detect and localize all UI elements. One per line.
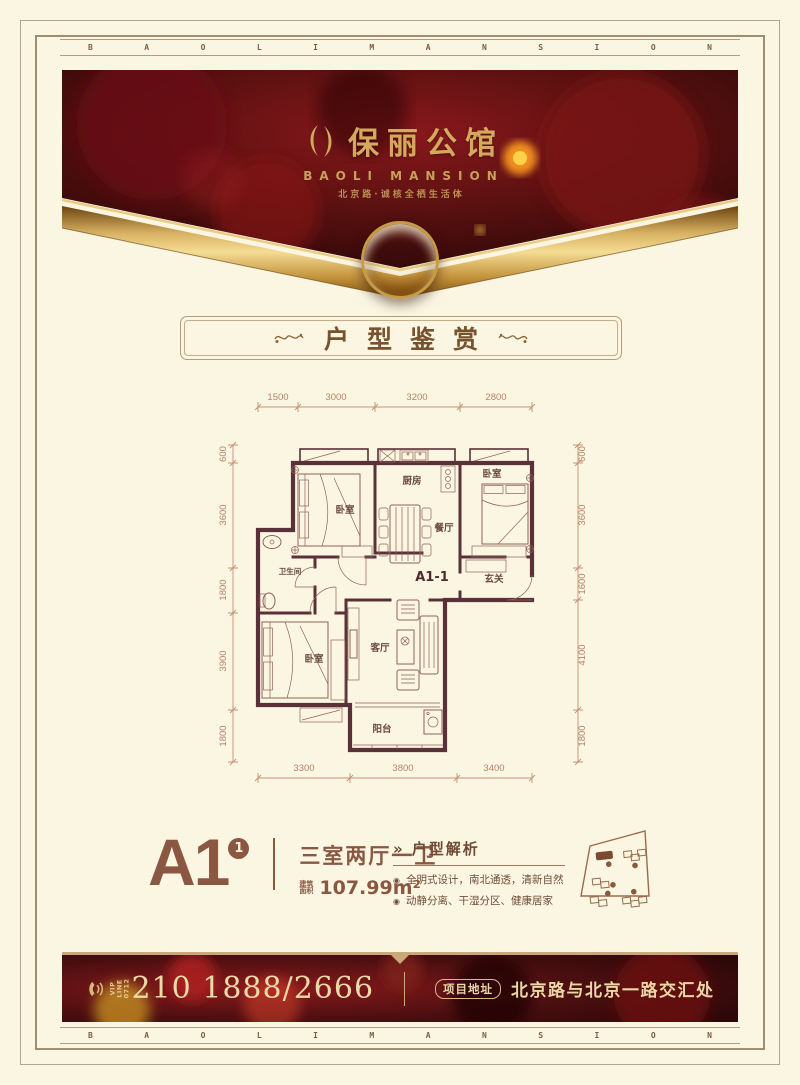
dimension-lines	[228, 402, 583, 783]
svg-text:1500: 1500	[267, 392, 288, 403]
brand-letter: N	[707, 43, 712, 52]
footer-banner-notch	[391, 955, 409, 964]
svg-text:600: 600	[577, 446, 588, 462]
address-label-pill: 项目地址	[435, 979, 501, 999]
svg-text:1800: 1800	[218, 725, 229, 746]
svg-text:3600: 3600	[577, 504, 588, 525]
svg-text:1800: 1800	[577, 725, 588, 746]
brand-letter: O	[201, 43, 206, 52]
room-label-dining: 餐厅	[433, 522, 454, 534]
svg-text:4100: 4100	[577, 644, 588, 665]
brand-letter: N	[707, 1031, 712, 1040]
brand-letter: B	[88, 43, 93, 52]
svg-text:1600: 1600	[577, 573, 588, 594]
bullet-icon: ◉	[393, 895, 400, 908]
vip-line-label: VIP LINE 0712	[110, 972, 131, 1006]
logo-chinese-name: 保丽公馆	[348, 118, 504, 163]
phone-number: 210 1888/2666	[131, 971, 374, 1006]
brand-letter-strip-bottom: B A O L I M A N S I O N	[60, 1027, 740, 1044]
door-swings	[295, 557, 532, 613]
svg-text:3200: 3200	[406, 392, 427, 403]
unit-name: A1	[148, 830, 228, 894]
svg-text:3400: 3400	[483, 763, 504, 774]
section-title-inner-border	[184, 320, 618, 356]
brand-letter: A	[426, 1031, 431, 1040]
analysis-section: » 户型解析 ◉ 全明式设计，南北通透，清新自然 ◉ 动静分离、干湿分区、健康居…	[393, 838, 583, 908]
brand-letter: O	[651, 1031, 656, 1040]
svg-text:3000: 3000	[325, 392, 346, 403]
area-label: 建筑 面积	[299, 881, 313, 896]
brand-letter: S	[538, 43, 543, 52]
svg-text:3300: 3300	[293, 763, 314, 774]
room-label-kitchen: 厨房	[402, 475, 421, 487]
analysis-title: 户型解析	[412, 838, 480, 859]
unit-divider	[273, 838, 275, 890]
brand-letter: N	[482, 43, 487, 52]
svg-text:3900: 3900	[218, 650, 229, 671]
footer-content: VIP LINE 0712 210 1888/2666 项目地址 北京路与北京一…	[62, 955, 738, 1022]
room-label-living: 客厅	[369, 642, 390, 654]
section-title-box: 户型鉴赏	[180, 316, 622, 360]
brand-letter: A	[144, 43, 149, 52]
logo-english-name: BAOLI MANSION	[303, 169, 504, 183]
chevron-right-icon: »	[393, 840, 403, 858]
brand-letter: I	[313, 1031, 318, 1040]
brand-letter: O	[651, 43, 656, 52]
brand-letter: L	[257, 1031, 262, 1040]
analysis-bullet-text: 全明式设计，南北通透，清新自然	[406, 874, 564, 887]
brand-letter: S	[538, 1031, 543, 1040]
phone-group: VIP LINE 0712 210 1888/2666	[85, 971, 374, 1006]
logo-tagline: 北京路·诚核全栖生活体	[338, 187, 464, 200]
unit-superscript-badge: 1	[228, 838, 249, 859]
gold-sphere-ornament	[361, 221, 439, 299]
footer-divider	[404, 972, 405, 1006]
brand-letter: A	[426, 43, 431, 52]
brand-letter: I	[595, 1031, 600, 1040]
brand-letter: M	[369, 43, 374, 52]
walls	[258, 449, 532, 750]
room-label-balcony: 阳台	[372, 723, 392, 735]
flourish-right-icon	[498, 330, 528, 346]
svg-text:2800: 2800	[485, 392, 506, 403]
brand-letter: B	[88, 1031, 93, 1040]
svg-text:1800: 1800	[218, 579, 229, 600]
bullet-icon: ◉	[393, 874, 400, 887]
svg-text:3800: 3800	[392, 763, 413, 774]
room-label-bath: 卫生间	[279, 566, 302, 576]
brand-letter-strip-top: B A O L I M A N S I O N	[60, 39, 740, 56]
brand-letter: A	[144, 1031, 149, 1040]
brand-letter: N	[482, 1031, 487, 1040]
logo-block: 保丽公馆 BAOLI MANSION 北京路·诚核全栖生活体	[62, 118, 738, 200]
brand-letter: M	[369, 1031, 374, 1040]
phone-icon	[85, 978, 107, 1000]
floorplan-drawing: 1500 3000 3200 2800 3300 3800 3400 600 3…	[190, 383, 610, 803]
brand-letter: L	[257, 43, 262, 52]
area-label-line2: 面积	[299, 888, 313, 896]
brand-letter: I	[313, 43, 318, 52]
flyer-page: B A O L I M A N S I O N	[0, 0, 800, 1085]
hero-banner: 保丽公馆 BAOLI MANSION 北京路·诚核全栖生活体	[62, 70, 738, 302]
analysis-bullet-2: ◉ 动静分离、干湿分区、健康居家	[393, 895, 583, 908]
brand-letter: I	[595, 43, 600, 52]
room-label-bedroom1: 卧室	[335, 504, 355, 516]
site-plan-sketch	[575, 818, 670, 918]
brand-letter: O	[201, 1031, 206, 1040]
svg-text:600: 600	[218, 446, 229, 462]
room-label-bedroom2: 卧室	[304, 653, 324, 665]
baoli-logo-icon	[304, 122, 338, 160]
address-text: 北京路与北京一路交汇处	[511, 976, 715, 1001]
svg-text:3600: 3600	[218, 504, 229, 525]
unit-plan-label: A1-1	[415, 570, 449, 585]
room-label-entry: 玄关	[484, 573, 504, 585]
furniture	[260, 450, 534, 734]
room-label-bedroom3: 卧室	[482, 468, 502, 480]
analysis-bullet-text: 动静分离、干湿分区、健康居家	[406, 895, 553, 908]
footer-banner: VIP LINE 0712 210 1888/2666 项目地址 北京路与北京一…	[62, 952, 738, 1022]
vip-line-code: 0712	[124, 972, 131, 1006]
analysis-bullet-1: ◉ 全明式设计，南北通透，清新自然	[393, 874, 583, 887]
